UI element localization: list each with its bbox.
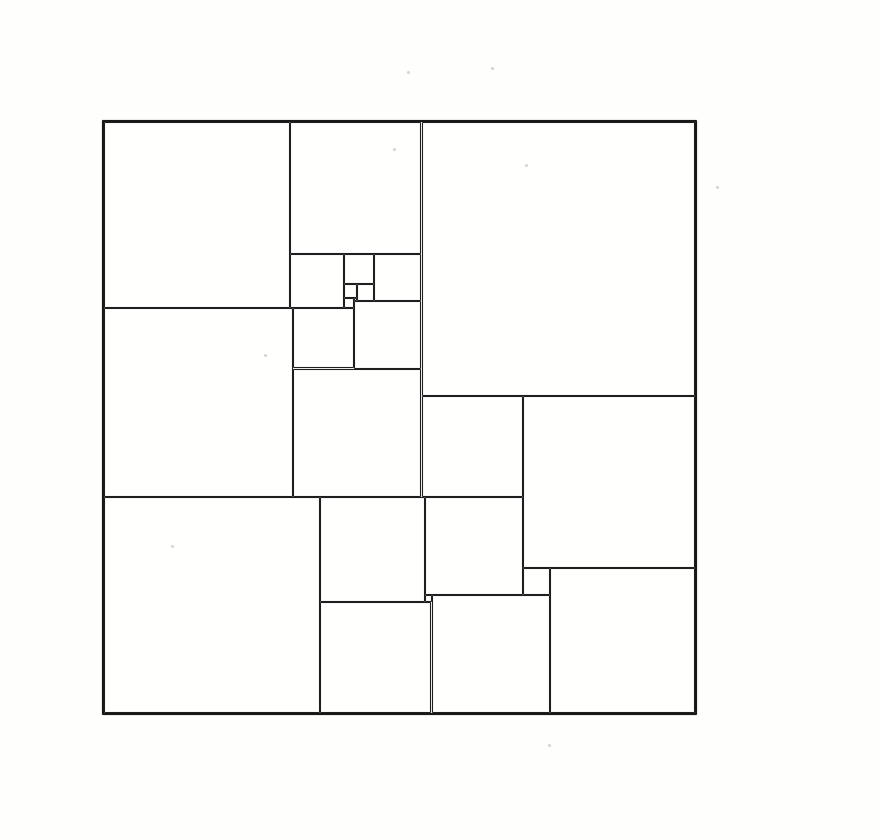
square-31 xyxy=(320,497,425,602)
square-38 xyxy=(293,369,421,497)
square-56 xyxy=(104,308,293,497)
scan-speckle xyxy=(716,186,719,189)
scan-speckle xyxy=(264,354,267,357)
square-20 xyxy=(354,301,422,369)
square-30 xyxy=(422,396,523,497)
square-8 xyxy=(523,568,550,595)
square-43 xyxy=(550,568,695,713)
square-2 xyxy=(425,595,432,602)
square-14 xyxy=(374,254,421,301)
square-81 xyxy=(422,122,696,396)
square-55 xyxy=(104,122,290,308)
page-background xyxy=(0,0,879,838)
square-16 xyxy=(290,254,344,308)
scan-speckle xyxy=(491,67,494,70)
square-64 xyxy=(104,497,320,713)
scan-speckle xyxy=(525,164,528,167)
square-9 xyxy=(344,254,374,284)
square-5 xyxy=(357,284,374,301)
square-18 xyxy=(293,308,354,369)
scan-speckle xyxy=(548,744,551,747)
scan-speckle xyxy=(171,545,174,548)
square-35 xyxy=(432,595,550,713)
scan-speckle xyxy=(407,71,410,74)
square-33 xyxy=(320,602,431,713)
square-4 xyxy=(344,284,358,298)
square-51 xyxy=(523,396,695,568)
square-3 xyxy=(344,298,354,308)
scan-speckle xyxy=(393,148,396,151)
square-39 xyxy=(290,122,422,254)
squared-square-frame xyxy=(102,120,697,715)
square-29 xyxy=(425,497,523,595)
